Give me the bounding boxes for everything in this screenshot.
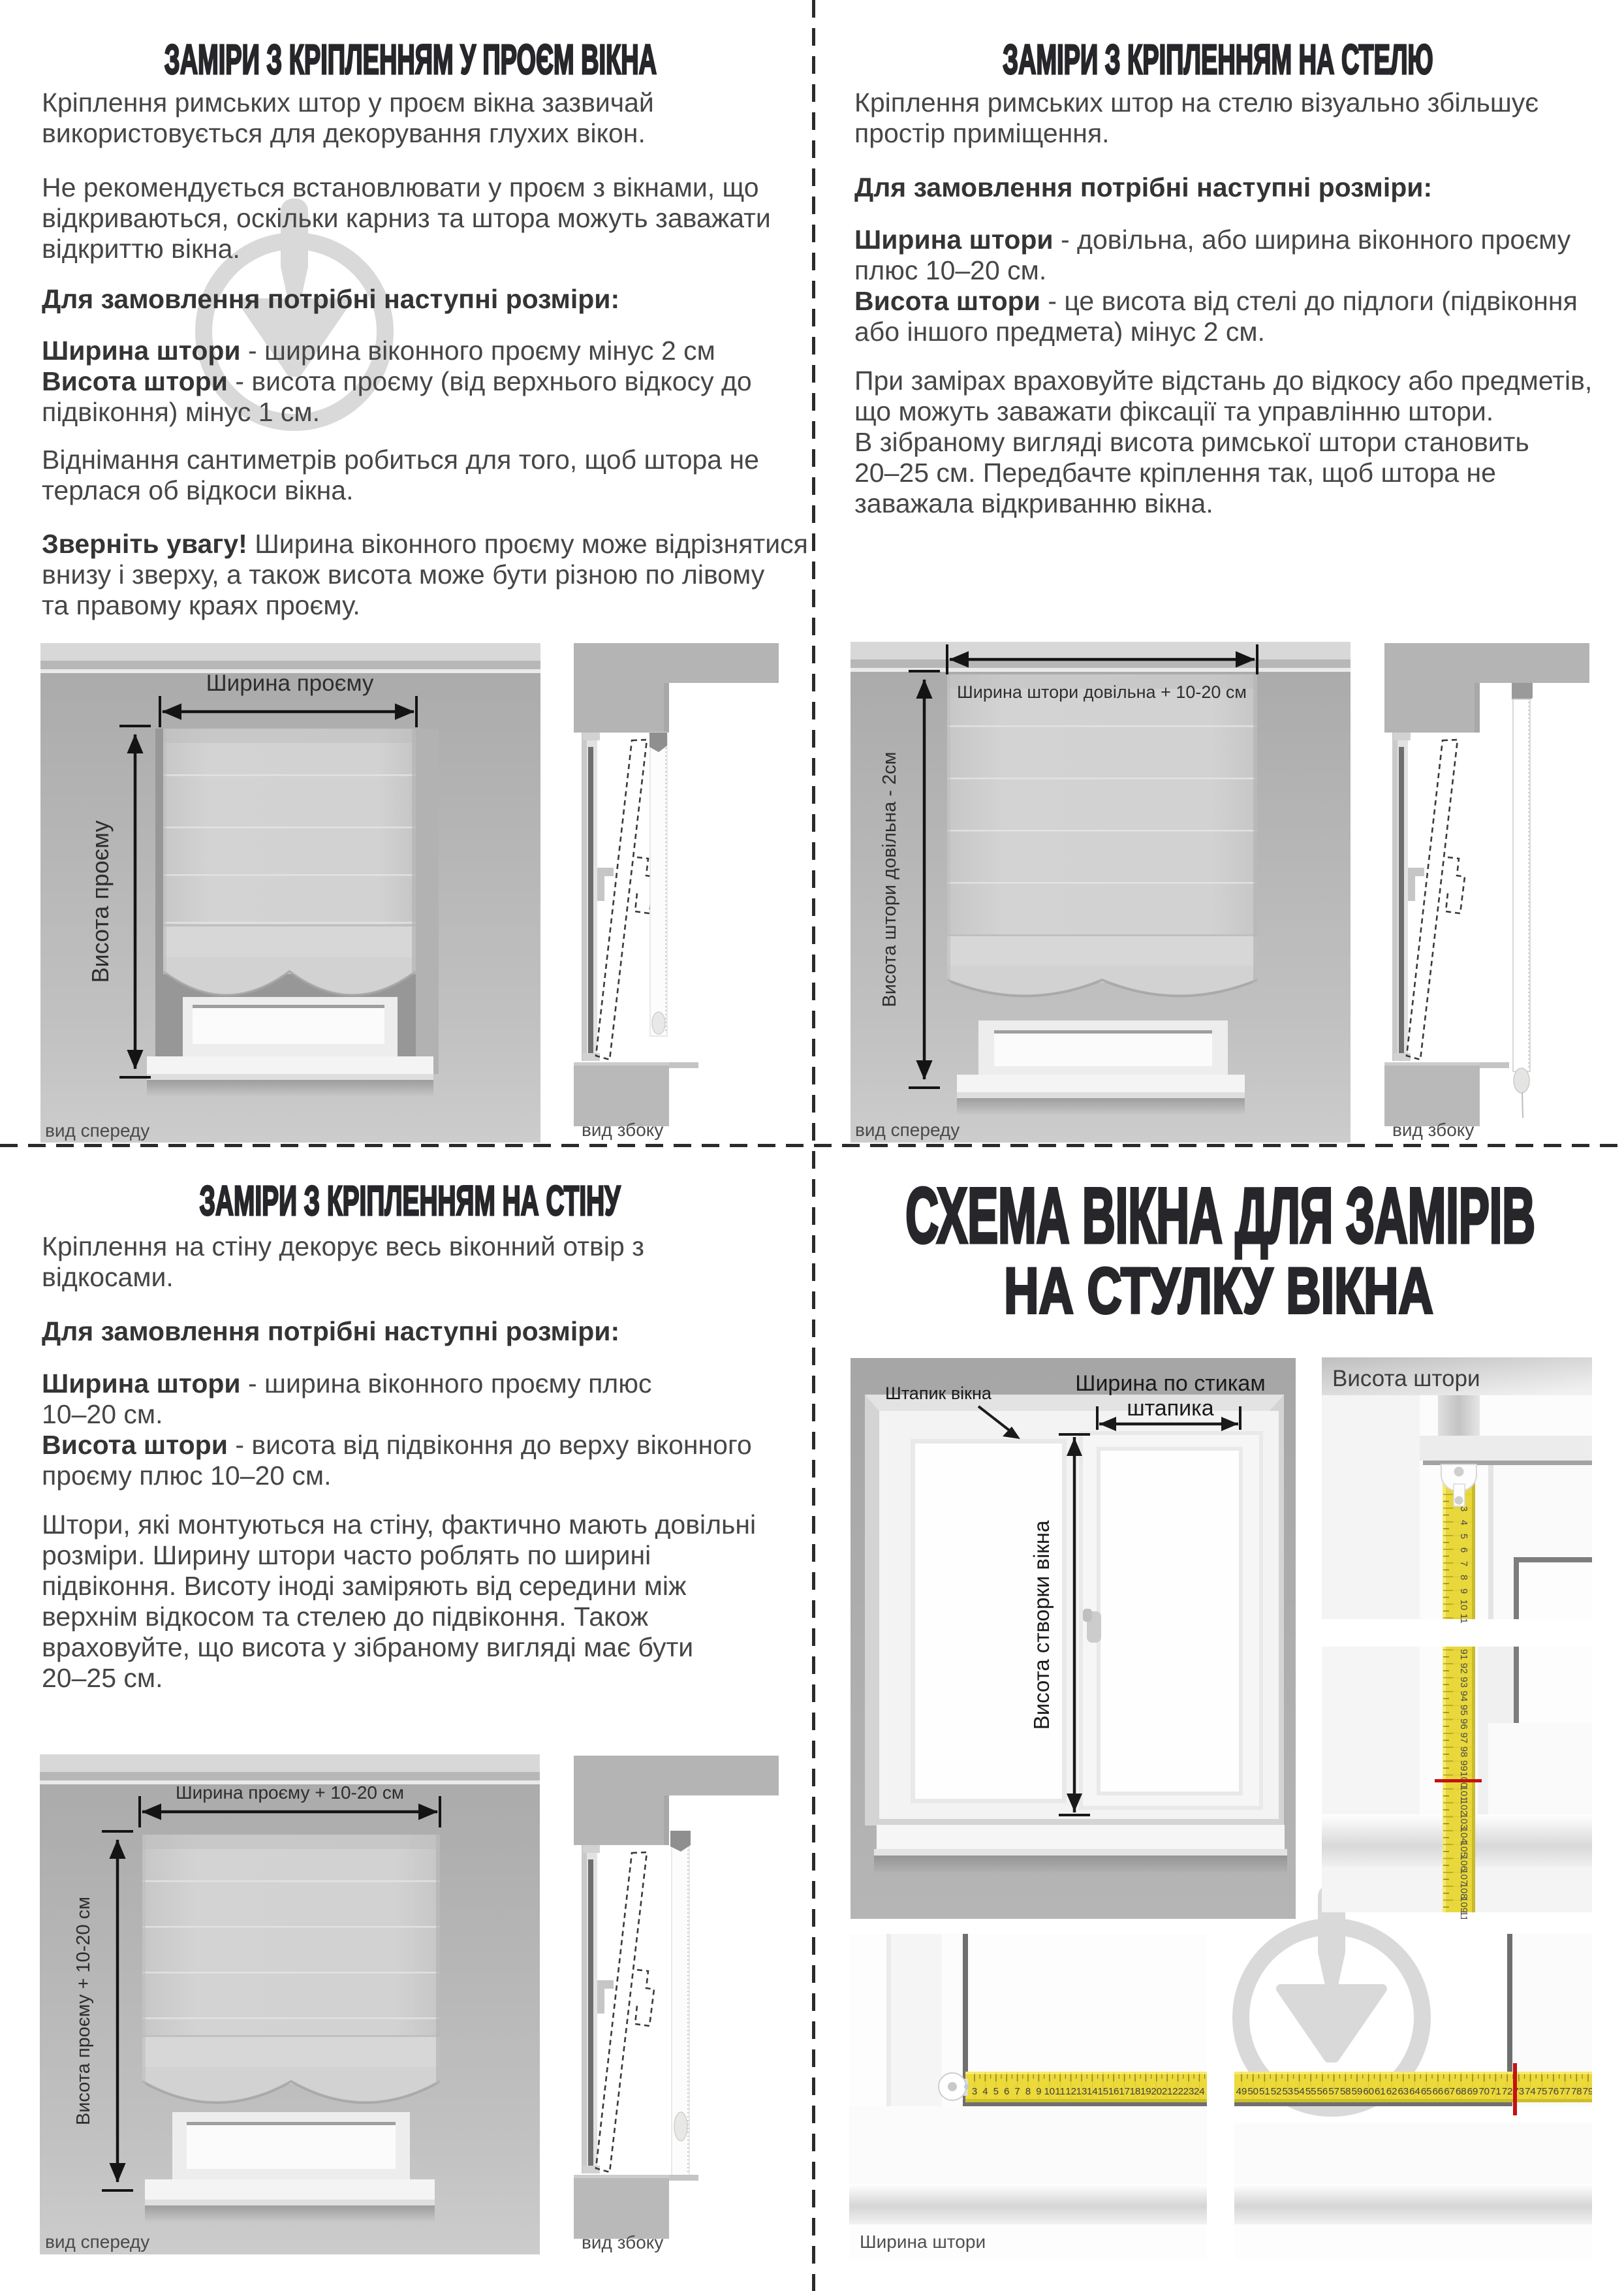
svg-text:16: 16: [1108, 2086, 1119, 2097]
svg-text:Ширина штори довільна + 10-20: Ширина штори довільна + 10-20 см: [957, 682, 1247, 702]
svg-text:60: 60: [1363, 2086, 1374, 2097]
svg-text:Висота створки вікна: Висота створки вікна: [1029, 1520, 1054, 1730]
svg-text:Ширина проєму: Ширина проєму: [206, 671, 374, 696]
svg-text:5: 5: [993, 2086, 999, 2097]
svg-text:18: 18: [1130, 2086, 1141, 2097]
svg-text:92: 92: [1458, 1663, 1469, 1674]
svg-text:вид спереду: вид спереду: [855, 1120, 960, 1140]
svg-text:12: 12: [1065, 2086, 1076, 2097]
svg-text:69: 69: [1467, 2086, 1478, 2097]
svg-text:96: 96: [1458, 1718, 1469, 1730]
svg-text:вид спереду: вид спереду: [45, 1120, 149, 1141]
svg-text:11: 11: [1055, 2086, 1065, 2097]
svg-text:17: 17: [1119, 2086, 1130, 2097]
svg-text:65: 65: [1421, 2086, 1432, 2097]
svg-text:6: 6: [1004, 2086, 1009, 2097]
svg-text:93: 93: [1458, 1677, 1469, 1688]
svg-text:10: 10: [1458, 1600, 1469, 1611]
svg-text:61: 61: [1375, 2086, 1386, 2097]
svg-text:53: 53: [1282, 2086, 1293, 2097]
svg-text:95: 95: [1458, 1705, 1469, 1716]
svg-text:54: 54: [1294, 2086, 1305, 2097]
svg-text:вид збоку: вид збоку: [582, 2232, 663, 2252]
svg-text:Висота проєму + 10-20 см: Висота проєму + 10-20 см: [73, 1897, 94, 2125]
svg-text:6: 6: [1458, 1547, 1469, 1553]
svg-text:76: 76: [1548, 2086, 1559, 2097]
svg-text:94: 94: [1458, 1691, 1469, 1702]
svg-text:Ширина проєму + 10-20 см: Ширина проєму + 10-20 см: [176, 1782, 404, 1803]
svg-text:77: 77: [1559, 2086, 1570, 2097]
svg-text:78: 78: [1571, 2086, 1582, 2097]
svg-text:22: 22: [1172, 2086, 1183, 2097]
svg-text:64: 64: [1409, 2086, 1420, 2097]
svg-text:8: 8: [1458, 1575, 1469, 1580]
svg-text:Ширина по стикам: Ширина по стикам: [1075, 1371, 1265, 1396]
svg-text:3: 3: [1458, 1506, 1469, 1511]
svg-text:15: 15: [1097, 2086, 1108, 2097]
svg-text:4: 4: [1458, 1520, 1469, 1525]
svg-text:8: 8: [1025, 2086, 1031, 2097]
svg-text:Штапик вікна: Штапик вікна: [885, 1383, 992, 1403]
svg-text:59: 59: [1352, 2086, 1363, 2097]
svg-text:7: 7: [1014, 2086, 1020, 2097]
svg-text:56: 56: [1317, 2086, 1328, 2097]
svg-text:вид збоку: вид збоку: [1392, 1120, 1474, 1140]
svg-text:57: 57: [1328, 2086, 1339, 2097]
svg-text:Висота штори: Висота штори: [1332, 1366, 1480, 1391]
svg-text:52: 52: [1271, 2086, 1282, 2097]
svg-text:9: 9: [1036, 2086, 1041, 2097]
svg-text:110: 110: [1458, 1911, 1469, 1919]
svg-text:5: 5: [1458, 1534, 1469, 1539]
svg-text:74: 74: [1525, 2086, 1536, 2097]
svg-text:23: 23: [1183, 2086, 1195, 2097]
svg-text:11: 11: [1458, 1613, 1469, 1624]
svg-text:вид збоку: вид збоку: [582, 1120, 663, 1140]
svg-text:70: 70: [1478, 2086, 1490, 2097]
svg-text:75: 75: [1537, 2086, 1548, 2097]
svg-text:66: 66: [1433, 2086, 1444, 2097]
svg-text:Ширина штори: Ширина штори: [860, 2232, 986, 2252]
svg-text:72: 72: [1502, 2086, 1513, 2097]
svg-text:21: 21: [1162, 2086, 1173, 2097]
svg-text:71: 71: [1490, 2086, 1501, 2097]
svg-text:Висота штори довільна - 2см: Висота штори довільна - 2см: [879, 751, 900, 1007]
svg-text:10: 10: [1044, 2086, 1055, 2097]
svg-text:50: 50: [1247, 2086, 1258, 2097]
svg-text:68: 68: [1456, 2086, 1467, 2097]
svg-text:24: 24: [1194, 2086, 1205, 2097]
svg-text:штапика: штапика: [1127, 1396, 1213, 1421]
svg-text:49: 49: [1236, 2086, 1247, 2097]
svg-text:62: 62: [1386, 2086, 1398, 2097]
svg-text:19: 19: [1140, 2086, 1151, 2097]
svg-text:55: 55: [1305, 2086, 1317, 2097]
svg-text:вид спереду: вид спереду: [45, 2232, 149, 2252]
svg-text:67: 67: [1444, 2086, 1455, 2097]
svg-text:7: 7: [1458, 1561, 1469, 1566]
svg-text:99: 99: [1458, 1760, 1469, 1771]
svg-text:3: 3: [972, 2086, 977, 2097]
svg-text:13: 13: [1076, 2086, 1087, 2097]
svg-text:14: 14: [1087, 2086, 1098, 2097]
svg-text:97: 97: [1458, 1732, 1469, 1743]
svg-text:91: 91: [1458, 1649, 1469, 1660]
svg-text:Висота проєму: Висота проєму: [87, 821, 114, 983]
svg-text:4: 4: [982, 2086, 988, 2097]
svg-text:58: 58: [1340, 2086, 1351, 2097]
svg-text:9: 9: [1458, 1588, 1469, 1594]
svg-text:79: 79: [1583, 2086, 1592, 2097]
svg-text:98: 98: [1458, 1746, 1469, 1758]
svg-text:51: 51: [1259, 2086, 1270, 2097]
svg-text:63: 63: [1398, 2086, 1409, 2097]
svg-text:20: 20: [1151, 2086, 1162, 2097]
